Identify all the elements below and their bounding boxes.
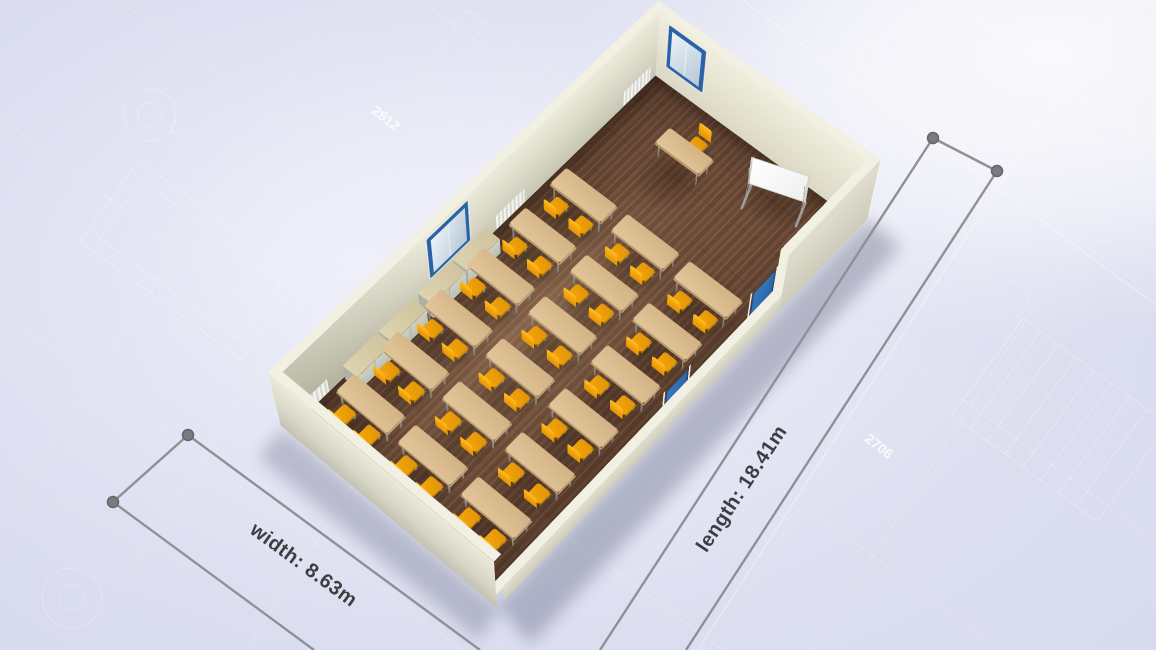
room-3d-scene[interactable] (0, 0, 1156, 650)
classroom-3d-viewport: 2812 2706 width: 8.63m length: 18.41m (0, 0, 1156, 650)
